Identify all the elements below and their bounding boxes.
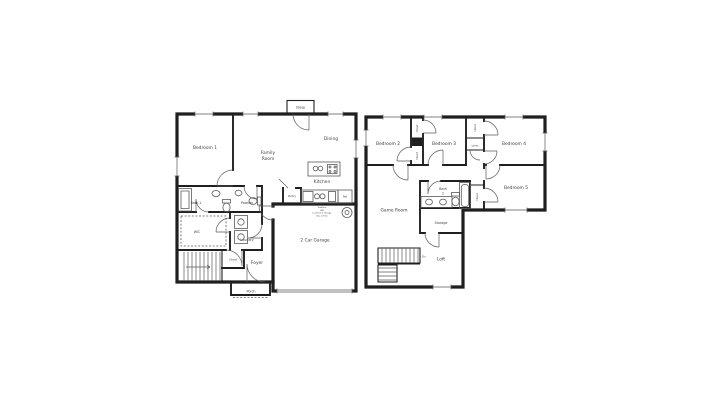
label-kitchen: Kitchen [314, 179, 331, 185]
first-floor: Stoop Bedroom 1 Family Room Dining Kitch… [175, 101, 359, 298]
label-wic: WIC [194, 230, 201, 234]
label-stoop: Stoop [296, 106, 306, 110]
label-closet-bed5: Closet [475, 193, 479, 201]
label-bath-2-line1: Bath [439, 187, 447, 191]
label-loft: Loft [437, 257, 446, 263]
label-powder: Powder [241, 201, 254, 205]
label-laundry: Laundry [240, 238, 253, 242]
label-wh-note-2: WH [320, 210, 324, 212]
label-family-room-1: Family [261, 150, 276, 156]
label-wh-note-1: Tankless [318, 207, 327, 209]
label-game-room: Game Room [381, 208, 408, 214]
label-linen: Linen [472, 144, 479, 148]
label-bedroom-4: Bedroom 4 [502, 141, 526, 147]
label-wh-note-4: Gas or Elec [316, 214, 329, 217]
label-dining: Dining [324, 136, 338, 142]
label-closet: Closet [229, 258, 237, 262]
label-bedroom-3: Bedroom 3 [432, 141, 456, 147]
label-wh-note-3: Located in Garage [312, 212, 332, 215]
label-bedroom-1: Bedroom 1 [193, 145, 217, 151]
label-closet-bed3: Closet [415, 125, 419, 133]
label-bath-2-line2: 2 [442, 192, 444, 196]
label-family-room-2: Room [262, 156, 275, 162]
label-porch: Porch [246, 290, 255, 294]
label-garage: 2 Car Garage [300, 238, 330, 244]
label-pantry: Pantry [288, 194, 297, 198]
label-ref: Ref [343, 195, 347, 199]
label-bedroom-2: Bedroom 2 [376, 141, 400, 147]
floorplan-page: Stoop Bedroom 1 Family Room Dining Kitch… [0, 0, 720, 404]
second-floor: Bedroom 2 Bedroom 3 Bedroom 4 Bedroom 5 … [364, 115, 548, 290]
label-foyer: Foyer [251, 260, 263, 266]
floorplan-drawing: Stoop Bedroom 1 Family Room Dining Kitch… [0, 0, 720, 404]
label-stair-dn: Dn [422, 255, 426, 259]
chase [412, 138, 422, 147]
label-closet-bed2: Closet [415, 152, 419, 160]
label-bedroom-5: Bedroom 5 [504, 185, 528, 191]
label-bath-1: Bath 1 [191, 201, 202, 205]
label-storage: Storage [435, 221, 448, 225]
label-closet-bed4: Closet [473, 124, 477, 132]
